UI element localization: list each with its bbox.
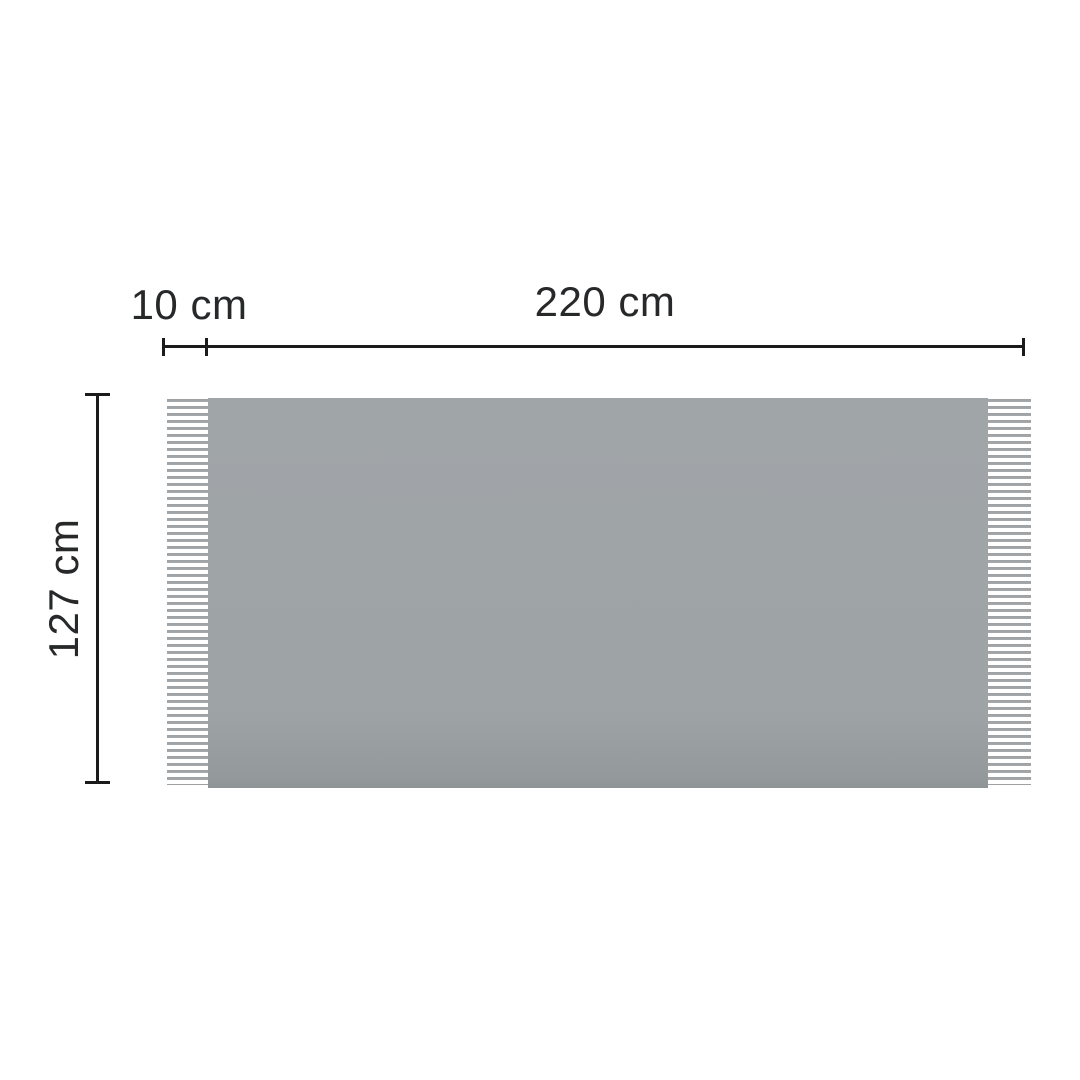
vertical-dimension-tick-top: [85, 393, 110, 396]
horizontal-dimension-tick-fringe: [205, 338, 208, 356]
blanket-fringe-right: [988, 399, 1031, 785]
blanket-body: [208, 398, 988, 788]
vertical-dimension-line: [96, 394, 99, 784]
total-width-label: 220 cm: [535, 281, 676, 323]
vertical-dimension-tick-bottom: [85, 781, 110, 784]
height-label: 127 cm: [43, 519, 85, 660]
fringe-width-label: 10 cm: [131, 284, 248, 326]
blanket-fringe-left: [167, 399, 208, 785]
horizontal-dimension-tick-left: [162, 338, 165, 356]
horizontal-dimension-line: [162, 345, 1025, 348]
dimension-diagram: 10 cm 220 cm 127 cm: [0, 0, 1080, 1080]
blanket-graphic: [167, 398, 1031, 788]
horizontal-dimension-tick-right: [1022, 338, 1025, 356]
